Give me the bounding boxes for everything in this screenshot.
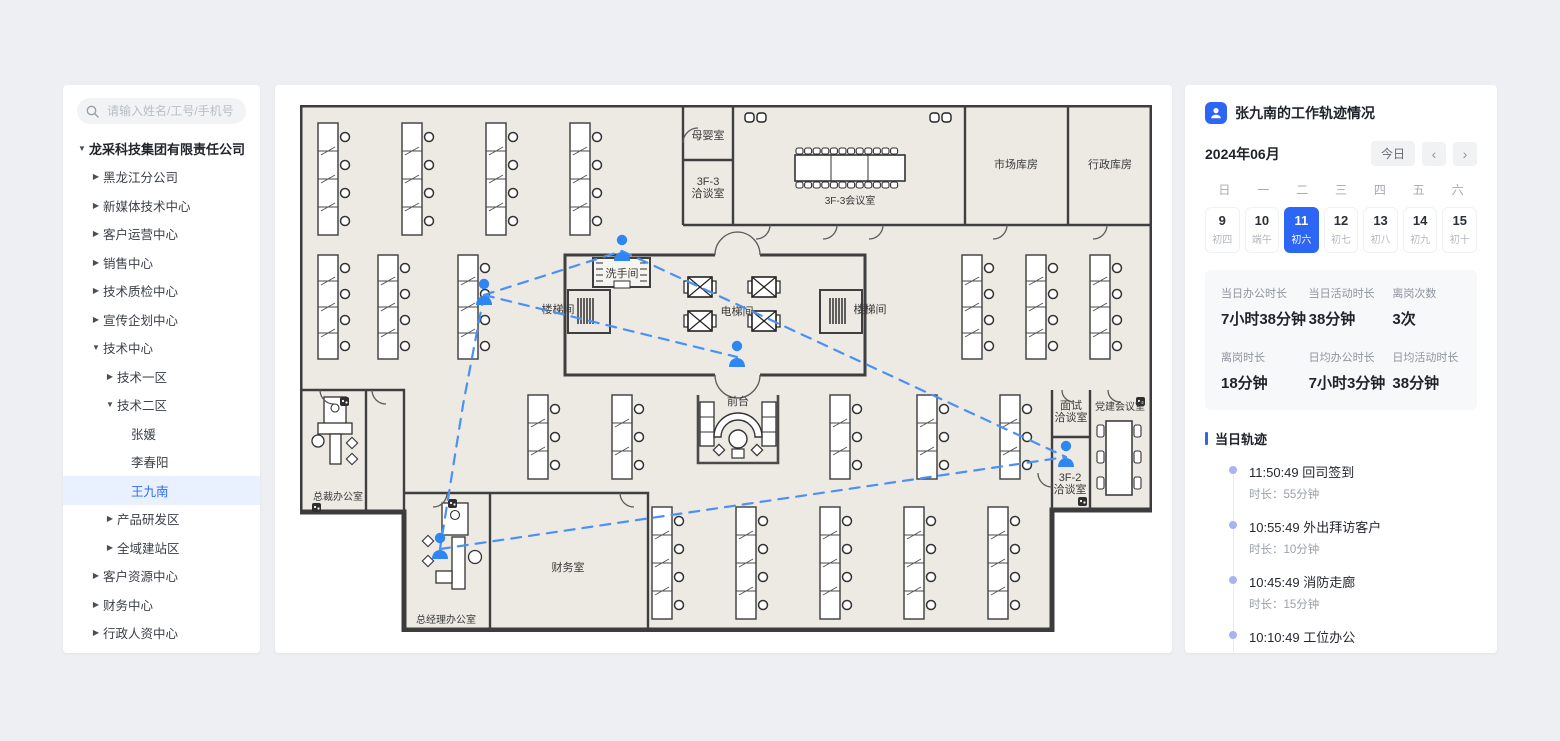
- org-sidebar: ▼龙采科技集团有限责任公司▶黑龙江分公司▶新媒体技术中心▶客户运营中心▶销售中心…: [63, 85, 260, 653]
- event-duration: 时长：55分钟: [1249, 486, 1477, 502]
- tree-item-4[interactable]: ▶销售中心: [63, 248, 260, 277]
- floor-plan: 母婴室3F-3洽谈室3F-3会议室市场库房行政库房洗手间楼梯间电梯间楼梯间前台总…: [300, 105, 1152, 632]
- date-day: 14: [1404, 213, 1437, 228]
- date-day: 15: [1443, 213, 1476, 228]
- tree-item-1[interactable]: ▶黑龙江分公司: [63, 163, 260, 192]
- room-label: 面试: [1060, 399, 1082, 412]
- timeline-event-2[interactable]: 10:45:49 消防走廊时长：15分钟: [1229, 572, 1477, 612]
- event-duration: 时长：15分钟: [1249, 596, 1477, 612]
- date-day: 9: [1206, 213, 1239, 228]
- next-week-button[interactable]: ›: [1453, 142, 1477, 166]
- weekday-label: 五: [1399, 181, 1438, 198]
- event-time: 11:50:49: [1249, 465, 1299, 480]
- stat-5: 日均活动时长38分钟: [1392, 349, 1461, 393]
- stat-2: 离岗次数3次: [1392, 285, 1461, 329]
- event-time: 10:55:49: [1249, 520, 1300, 535]
- tree-item-label: 技术二区: [117, 395, 167, 414]
- tree-item-label: 李春阳: [131, 452, 169, 471]
- tree-item-16[interactable]: ▶财务中心: [63, 590, 260, 619]
- event-duration: 时长：20分钟: [1249, 651, 1477, 653]
- tree-item-11[interactable]: 李春阳: [63, 448, 260, 477]
- date-lunar: 端午: [1246, 231, 1279, 246]
- tree-item-label: 技术中心: [103, 338, 153, 357]
- date-cell-11[interactable]: 11初六: [1284, 207, 1319, 253]
- tree-item-6[interactable]: ▶宣传企划中心: [63, 305, 260, 334]
- weekday-label: 二: [1283, 181, 1322, 198]
- tree-item-label: 新媒体技术中心: [103, 196, 191, 215]
- room-label: 母婴室: [692, 128, 725, 142]
- stat-label: 离岗时长: [1221, 349, 1309, 365]
- tree-item-label: 客户运营中心: [103, 224, 178, 243]
- timeline-dot-icon: [1229, 521, 1237, 529]
- stat-label: 日均活动时长: [1392, 349, 1461, 365]
- weekday-label: 一: [1244, 181, 1283, 198]
- weekday-label: 四: [1360, 181, 1399, 198]
- tree-item-17[interactable]: ▶行政人资中心: [63, 619, 260, 648]
- trajectory-panel: 张九南的工作轨迹情况 2024年06月 今日 ‹ › 日一二三四五六 9初四10…: [1185, 85, 1497, 653]
- tree-item-10[interactable]: 张媛: [63, 419, 260, 448]
- chevron-down-icon[interactable]: ▼: [75, 144, 89, 153]
- room-label: 3F-3会议室: [825, 194, 876, 207]
- event-place: 回司签到: [1302, 465, 1354, 480]
- person-track-icon: [1205, 102, 1227, 124]
- chevron-right-icon[interactable]: ▶: [89, 315, 103, 324]
- timeline-dot-icon: [1229, 631, 1237, 639]
- panel-title: 张九南的工作轨迹情况: [1235, 103, 1375, 123]
- tree-item-label: 全域建站区: [117, 538, 180, 557]
- stat-value: 38分钟: [1392, 372, 1461, 393]
- month-label: 2024年06月: [1205, 144, 1371, 164]
- event-place: 消防走廊: [1303, 575, 1355, 590]
- search-box[interactable]: [77, 98, 246, 124]
- chevron-right-icon[interactable]: ▶: [89, 571, 103, 580]
- track-title: 当日轨迹: [1215, 429, 1267, 448]
- stat-3: 离岗时长18分钟: [1221, 349, 1309, 393]
- date-day: 10: [1246, 213, 1279, 228]
- room-label: 财务室: [552, 560, 585, 574]
- date-lunar: 初十: [1443, 231, 1476, 246]
- tree-item-label: 客户资源中心: [103, 566, 178, 585]
- tree-item-7[interactable]: ▼技术中心: [63, 334, 260, 363]
- room-label: 行政库房: [1088, 157, 1132, 171]
- stat-value: 7小时3分钟: [1309, 372, 1393, 393]
- room-label: 总裁办公室: [313, 490, 363, 503]
- tree-item-label: 销售中心: [103, 253, 153, 272]
- tree-item-5[interactable]: ▶技术质检中心: [63, 277, 260, 306]
- stat-0: 当日办公时长7小时38分钟: [1221, 285, 1309, 329]
- chevron-right-icon[interactable]: ▶: [103, 372, 117, 381]
- room-label-line2: 洽谈室: [1055, 410, 1088, 424]
- event-place: 外出拜访客户: [1303, 520, 1381, 535]
- event-time: 10:45:49: [1249, 575, 1300, 590]
- room-label-line2: 洽谈室: [1054, 482, 1087, 496]
- stat-value: 3次: [1392, 308, 1461, 329]
- stat-value: 38分钟: [1309, 308, 1393, 329]
- chevron-right-icon[interactable]: ▶: [89, 600, 103, 609]
- date-day: 11: [1285, 213, 1318, 228]
- org-tree: ▼龙采科技集团有限责任公司▶黑龙江分公司▶新媒体技术中心▶客户运营中心▶销售中心…: [63, 134, 260, 647]
- tree-item-label: 技术质检中心: [103, 281, 178, 300]
- tree-item-label: 宣传企划中心: [103, 310, 178, 329]
- room-label: 前台: [727, 394, 749, 408]
- tree-item-label: 技术一区: [117, 367, 167, 386]
- date-cell-12[interactable]: 12初七: [1324, 207, 1359, 253]
- room-label: 党建会议室: [1095, 400, 1145, 413]
- stats-grid: 当日办公时长7小时38分钟当日活动时长38分钟离岗次数3次离岗时长18分钟日均办…: [1205, 270, 1477, 410]
- date-lunar: 初九: [1404, 231, 1437, 246]
- date-lunar: 初六: [1285, 231, 1318, 246]
- tree-item-label: 行政人资中心: [103, 623, 178, 642]
- chevron-right-icon[interactable]: ▶: [103, 514, 117, 523]
- chevron-right-icon[interactable]: ▶: [89, 201, 103, 210]
- date-lunar: 初四: [1206, 231, 1239, 246]
- date-cell-13[interactable]: 13初八: [1363, 207, 1398, 253]
- date-day: 13: [1364, 213, 1397, 228]
- timeline-dot-icon: [1229, 576, 1237, 584]
- timeline-event-3[interactable]: 10:10:49 工位办公时长：20分钟: [1229, 627, 1477, 653]
- tree-item-13[interactable]: ▶产品研发区: [63, 505, 260, 534]
- room-label: 3F-3: [697, 176, 720, 188]
- section-accent-bar: [1205, 432, 1208, 445]
- timeline-event-1[interactable]: 10:55:49 外出拜访客户时长：10分钟: [1229, 517, 1477, 557]
- chevron-down-icon[interactable]: ▼: [103, 400, 117, 409]
- stat-label: 当日办公时长: [1221, 285, 1309, 301]
- search-input[interactable]: [105, 103, 237, 119]
- chevron-down-icon[interactable]: ▼: [89, 343, 103, 352]
- room-label: 市场库房: [994, 157, 1038, 171]
- tree-item-label: 龙采科技集团有限责任公司: [89, 139, 245, 158]
- tree-item-2[interactable]: ▶新媒体技术中心: [63, 191, 260, 220]
- stat-value: 7小时38分钟: [1221, 308, 1309, 329]
- stat-label: 日均办公时长: [1309, 349, 1393, 365]
- tree-item-8[interactable]: ▶技术一区: [63, 362, 260, 391]
- tree-item-12[interactable]: 王九南: [63, 476, 260, 505]
- chevron-right-icon[interactable]: ▶: [89, 286, 103, 295]
- tree-item-label: 黑龙江分公司: [103, 167, 178, 186]
- timeline-event-0[interactable]: 11:50:49 回司签到时长：55分钟: [1229, 462, 1477, 502]
- room-label-line2: 洽谈室: [692, 186, 725, 200]
- date-lunar: 初七: [1325, 231, 1358, 246]
- chevron-right-icon[interactable]: ▶: [103, 543, 117, 552]
- search-icon: [86, 105, 99, 118]
- date-cell-15[interactable]: 15初十: [1442, 207, 1477, 253]
- tree-item-3[interactable]: ▶客户运营中心: [63, 220, 260, 249]
- stat-label: 当日活动时长: [1309, 285, 1393, 301]
- tree-item-label: 产品研发区: [117, 509, 180, 528]
- tree-item-label: 财务中心: [103, 595, 153, 614]
- room-label: 楼梯间: [854, 302, 887, 316]
- timeline-dot-icon: [1229, 466, 1237, 474]
- room-label: 洗手间: [606, 266, 639, 280]
- event-duration: 时长：10分钟: [1249, 541, 1477, 557]
- chevron-right-icon[interactable]: ▶: [89, 258, 103, 267]
- tree-item-label: 王九南: [131, 481, 169, 500]
- chevron-right-icon[interactable]: ▶: [89, 172, 103, 181]
- stat-label: 离岗次数: [1392, 285, 1461, 301]
- date-cell-10[interactable]: 10端午: [1245, 207, 1280, 253]
- stat-4: 日均办公时长7小时3分钟: [1309, 349, 1393, 393]
- stat-value: 18分钟: [1221, 372, 1309, 393]
- prev-week-button[interactable]: ‹: [1422, 142, 1446, 166]
- floor-plan-card: 母婴室3F-3洽谈室3F-3会议室市场库房行政库房洗手间楼梯间电梯间楼梯间前台总…: [275, 85, 1172, 653]
- tree-item-label: 张媛: [131, 424, 156, 443]
- date-cell-9[interactable]: 9初四: [1205, 207, 1240, 253]
- date-day: 12: [1325, 213, 1358, 228]
- event-time: 10:10:49: [1249, 630, 1300, 645]
- tree-item-0[interactable]: ▼龙采科技集团有限责任公司: [63, 134, 260, 163]
- today-button[interactable]: 今日: [1371, 141, 1415, 166]
- room-label: 总经理办公室: [416, 613, 476, 626]
- trajectory-timeline: 11:50:49 回司签到时长：55分钟10:55:49 外出拜访客户时长：10…: [1229, 462, 1477, 653]
- date-cell-14[interactable]: 14初九: [1403, 207, 1438, 253]
- weekday-row: 日一二三四五六: [1205, 181, 1477, 198]
- room-label: 电梯间: [721, 305, 754, 318]
- room-label: 3F-2: [1059, 472, 1082, 484]
- stat-1: 当日活动时长38分钟: [1309, 285, 1393, 329]
- date-row: 9初四10端午11初六12初七13初八14初九15初十: [1205, 207, 1477, 253]
- tree-item-14[interactable]: ▶全域建站区: [63, 533, 260, 562]
- weekday-label: 三: [1322, 181, 1361, 198]
- tree-item-15[interactable]: ▶客户资源中心: [63, 562, 260, 591]
- weekday-label: 六: [1438, 181, 1477, 198]
- date-lunar: 初八: [1364, 231, 1397, 246]
- event-place: 工位办公: [1303, 630, 1355, 645]
- tree-item-9[interactable]: ▼技术二区: [63, 391, 260, 420]
- chevron-right-icon[interactable]: ▶: [89, 628, 103, 637]
- chevron-right-icon[interactable]: ▶: [89, 229, 103, 238]
- weekday-label: 日: [1205, 181, 1244, 198]
